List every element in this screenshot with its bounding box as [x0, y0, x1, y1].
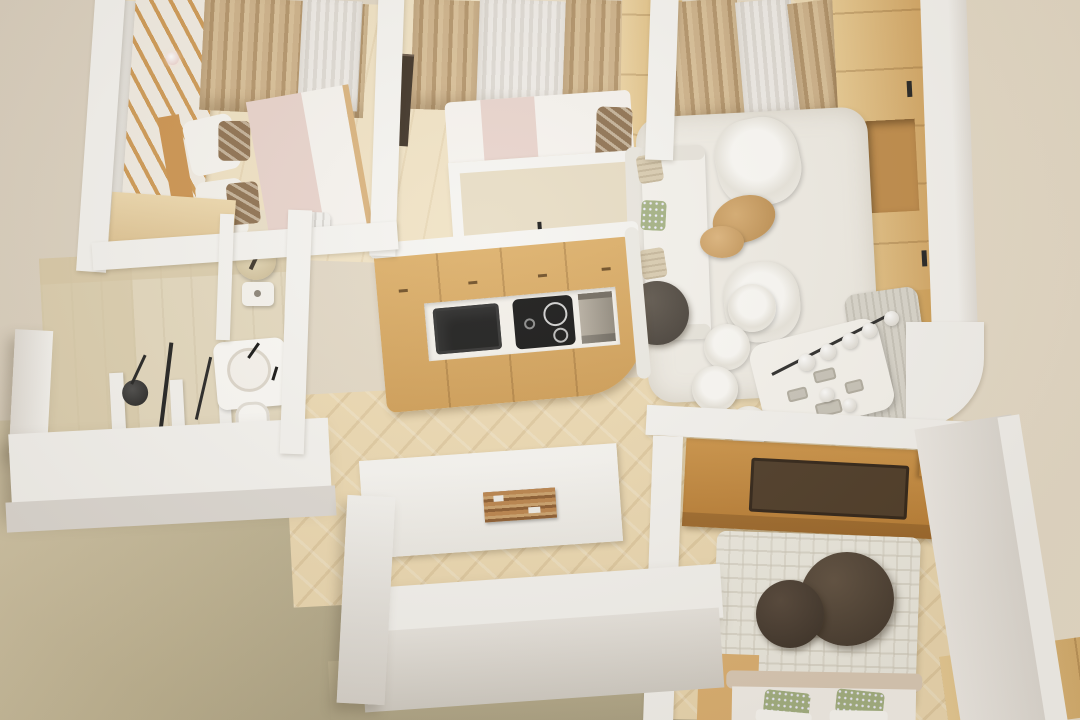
chandelier-globe: [884, 311, 899, 326]
curved-wall-corner: [906, 322, 984, 428]
dark-pouf-small: [756, 580, 824, 648]
cabinet-handle: [602, 267, 611, 271]
rain-shower-head: [121, 379, 148, 406]
bedroom2-curtain-left: [410, 0, 482, 111]
throw-pillow-tan: [639, 247, 668, 281]
dark-inlay-tray: [749, 458, 910, 520]
dining-chair: [704, 324, 750, 370]
slat-gap: [493, 495, 503, 502]
cabinet-handle: [907, 81, 913, 97]
towel-rail: [195, 357, 212, 420]
throw-pillow-green: [640, 200, 667, 231]
chandelier-globe: [820, 388, 834, 402]
kitchen-sink: [432, 303, 502, 355]
chandelier-globe: [820, 344, 836, 360]
cabinet-handle: [538, 274, 547, 278]
cabinet-handle: [921, 250, 927, 266]
patterned-cushion: [218, 121, 250, 161]
chandelier-globe: [798, 354, 815, 371]
cabinet-handle: [399, 289, 408, 293]
bedroom2-sheer-curtain: [476, 0, 568, 110]
chandelier-globe: [843, 399, 856, 412]
place-setting: [786, 386, 808, 402]
coffee-table-small: [700, 226, 744, 258]
apartment-3d-floorplan: [0, 0, 1080, 720]
cooktop-ring: [524, 318, 536, 330]
induction-cooktop: [512, 295, 576, 350]
bedroom3-bed: [726, 670, 923, 720]
cooktop-ring: [553, 327, 569, 343]
place-setting: [844, 378, 864, 394]
ceiling-light: [166, 52, 179, 65]
cooktop-ring: [542, 301, 568, 327]
worktop-recess: [424, 287, 620, 362]
media-wall-niche: [865, 119, 920, 213]
chandelier-globe: [862, 323, 877, 338]
chandelier-globe: [842, 333, 858, 349]
dining-chair: [692, 366, 738, 412]
kitchen-cabinet-run: [374, 233, 649, 413]
wood-slat-wall-art: [483, 488, 557, 523]
white-pillow: [830, 710, 888, 720]
oven: [578, 291, 616, 344]
flush-button: [254, 290, 261, 297]
cabinet-handle: [468, 281, 477, 285]
slat-gap: [528, 507, 540, 514]
place-setting: [813, 367, 837, 384]
